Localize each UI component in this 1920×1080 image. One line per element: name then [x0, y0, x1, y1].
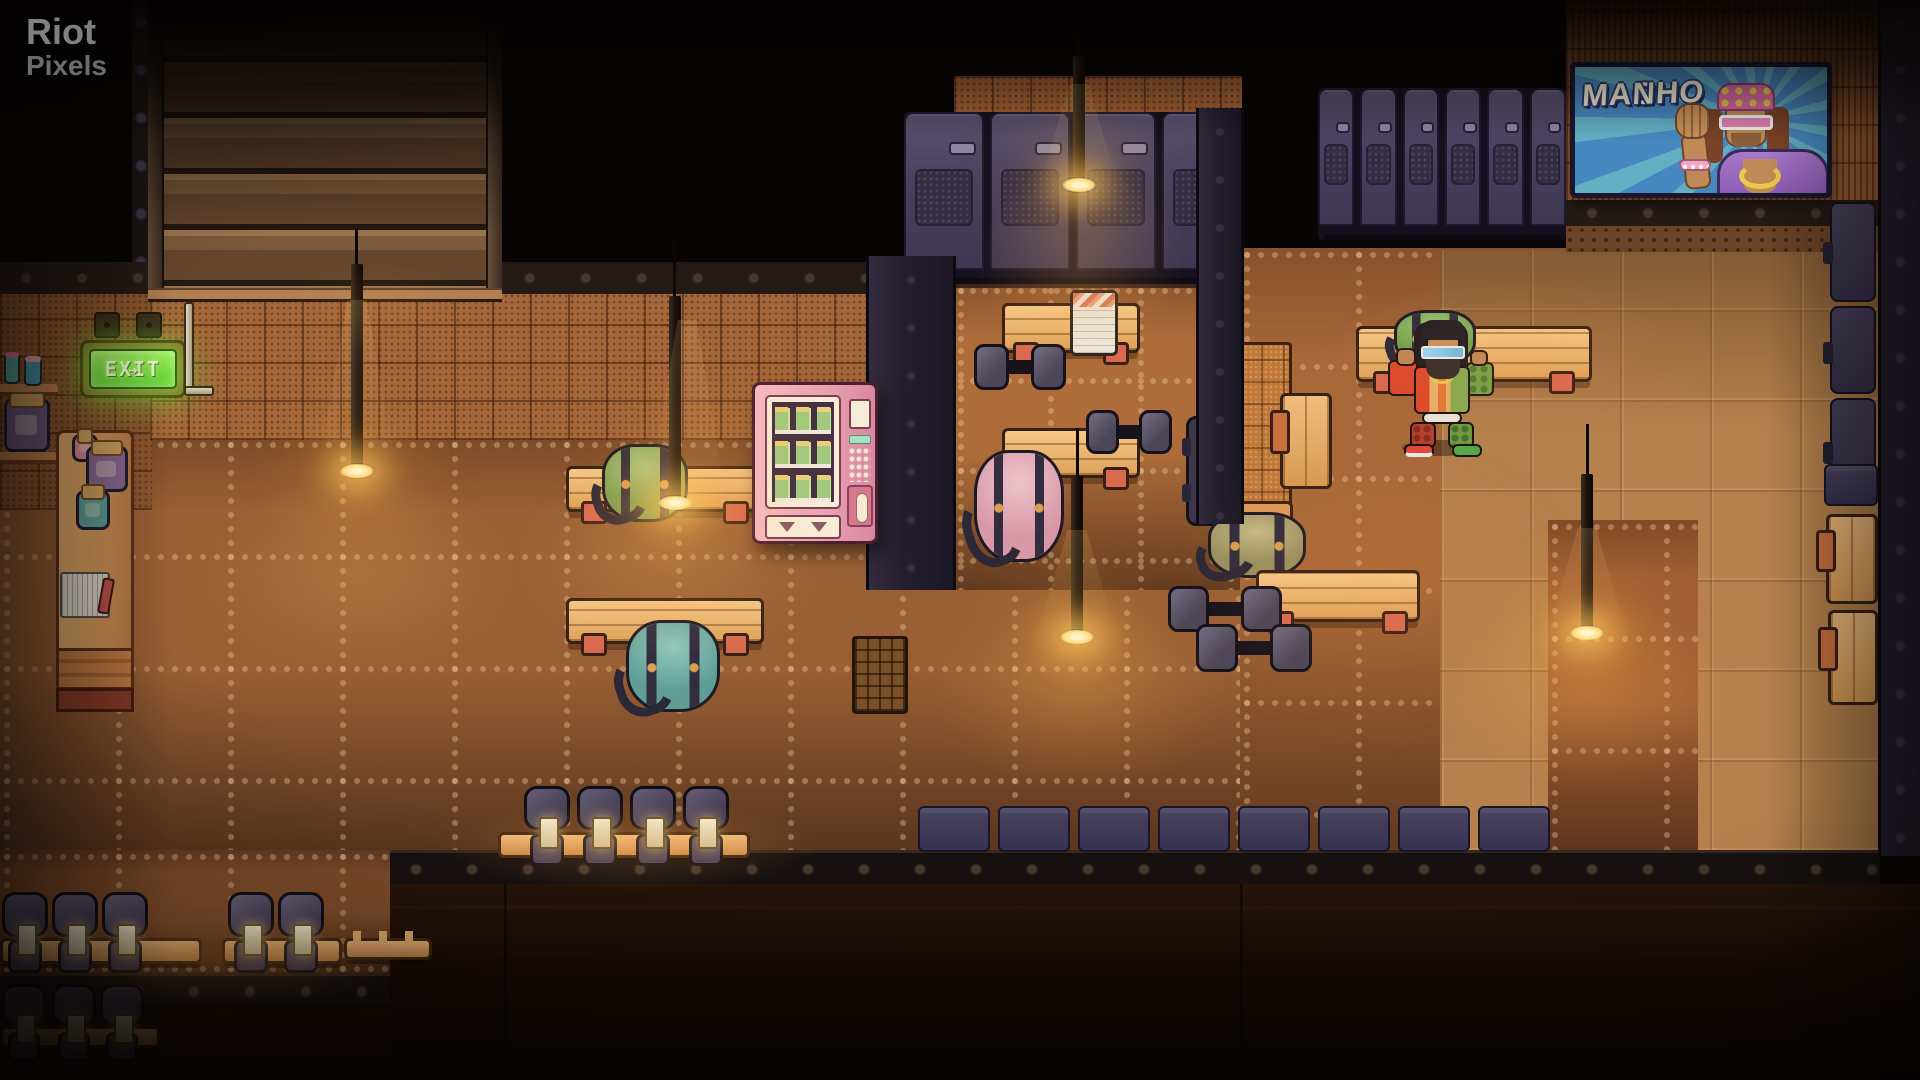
light-pool: [230, 240, 530, 370]
lamp-cord: [1586, 424, 1589, 480]
hanging-lamp: [1066, 56, 1092, 190]
light-pool: [360, 780, 900, 910]
light-pool: [540, 300, 880, 600]
hanging-lamp: [662, 296, 688, 508]
hanging-lamp: [344, 264, 370, 476]
light-pool: [140, 440, 580, 710]
lamp-cord: [673, 240, 676, 302]
hanging-lamp: [1064, 476, 1090, 642]
game-viewport[interactable]: EXIT➜ MACHO MAN: [0, 0, 1920, 1080]
lighting-layer: [0, 0, 1920, 1080]
lamp-cord: [1076, 428, 1079, 482]
exit-glow: [16, 316, 266, 446]
hanging-lamp: [1574, 474, 1600, 638]
light-pool: [0, 890, 480, 1030]
light-pool: [1240, 240, 1800, 470]
